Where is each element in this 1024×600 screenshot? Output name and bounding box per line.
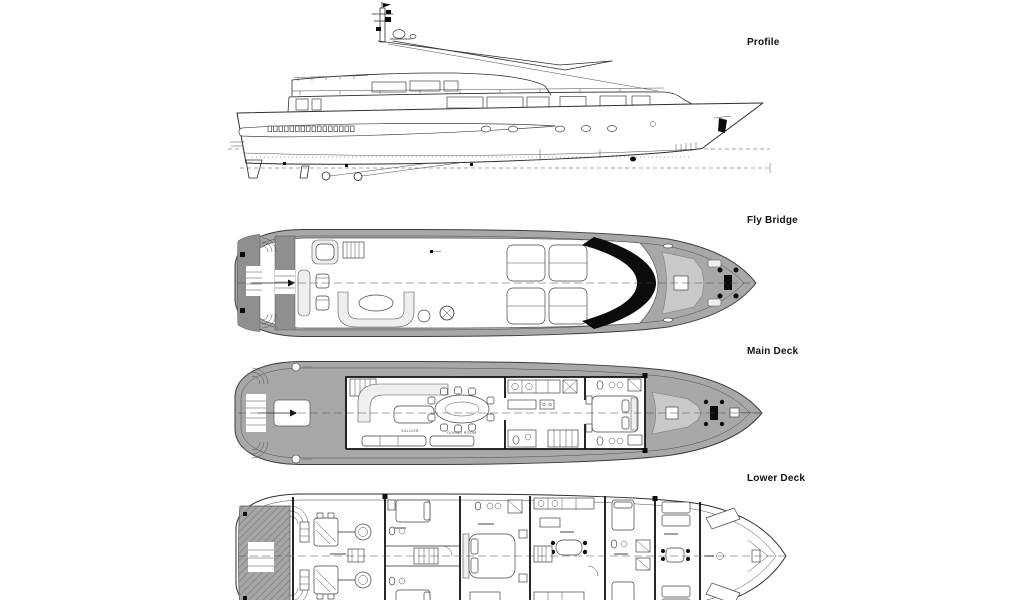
helm-console [298,270,310,316]
galley-stairs [534,546,552,562]
crew-bunk [662,586,690,597]
dining-table [435,395,489,423]
sideboard [430,436,474,446]
gearbox [355,524,371,540]
label-main-deck: Main Deck [747,346,798,357]
saloon-window [487,97,523,108]
propeller [322,172,330,180]
ga-drawing-sheet: SALOON DINING ROOM [0,0,1024,600]
saloon-label: SALOON [401,429,418,433]
saloon-window [447,97,483,108]
cleat [240,308,245,313]
flybridge-steps [343,242,364,258]
bollard [292,363,300,371]
stool [418,310,430,322]
toilet [513,436,519,444]
stairs-down [548,430,578,447]
yacht-general-arrangement-svg: SALOON DINING ROOM [0,0,1024,600]
sideboard [362,436,426,446]
upper-deckhouse [292,73,551,96]
label-profile: Profile [747,37,780,48]
fly-bridge-view [235,230,756,337]
helm-seat [316,274,329,288]
day-head [508,430,536,447]
main-deck-view: SALOON DINING ROOM [235,362,762,465]
label-fly-bridge: Fly Bridge [747,215,798,226]
crew-bunk [662,515,690,526]
pillow [622,400,629,412]
bollard [292,455,300,463]
mast-flag [383,3,391,8]
aft-door [296,99,308,110]
radar-dome [393,30,405,39]
pillow [622,417,629,429]
guest-bed [612,582,634,600]
helm-seat [316,296,329,310]
crew-bunk [662,502,690,513]
propeller [354,173,362,181]
lower-deck-view [236,494,786,600]
bow-table [724,275,732,290]
cleat [240,252,245,257]
windlass [730,408,739,417]
gearbox [355,572,371,588]
profile-view [228,2,770,181]
headboard [631,398,637,430]
label-lower-deck: Lower Deck [747,473,805,484]
upper-window [410,81,440,91]
dining-room-label: DINING ROOM [447,431,476,435]
cocktail-table [359,295,393,311]
generator [348,549,364,562]
